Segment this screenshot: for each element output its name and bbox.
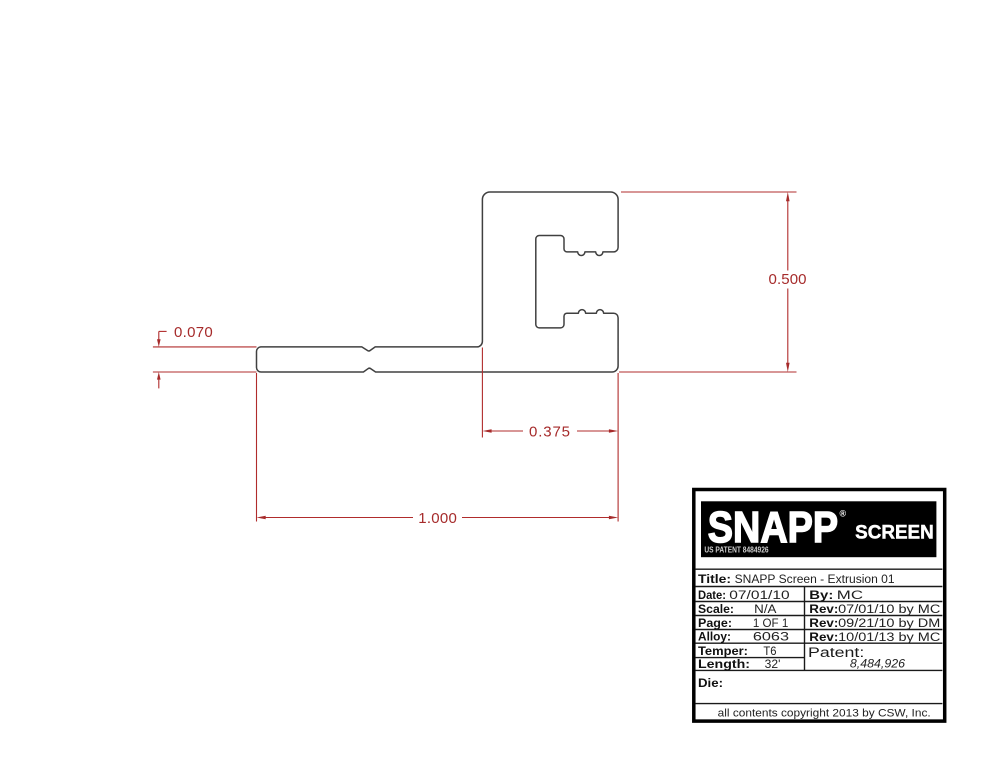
svg-text:MC: MC [837, 590, 863, 602]
svg-text:N/A: N/A [754, 604, 777, 616]
svg-text:SNAPP Screen - Extrusion 01: SNAPP Screen - Extrusion 01 [735, 574, 895, 586]
svg-text:Temper:: Temper: [698, 646, 748, 658]
svg-text:07/01/10 by MC: 07/01/10 by MC [838, 604, 940, 616]
svg-text:6063: 6063 [753, 632, 789, 644]
svg-text:SCREEN: SCREEN [855, 523, 934, 544]
svg-text:32': 32' [765, 659, 781, 671]
svg-text:Rev:: Rev: [809, 618, 838, 630]
svg-text:8,484,926: 8,484,926 [850, 658, 906, 670]
svg-text:®: ® [840, 509, 847, 519]
svg-text:Page:: Page: [698, 618, 732, 630]
svg-text:Scale:: Scale: [698, 604, 734, 616]
svg-text:Date:: Date: [698, 590, 726, 602]
svg-text:10/01/13 by MC: 10/01/13 by MC [838, 632, 940, 644]
svg-text:0.375: 0.375 [529, 423, 570, 440]
svg-text:09/21/10 by DM: 09/21/10 by DM [838, 618, 940, 630]
svg-text:1 OF 1: 1 OF 1 [753, 618, 788, 630]
svg-text:07/01/10: 07/01/10 [729, 590, 789, 602]
svg-text:0.070: 0.070 [174, 324, 213, 341]
svg-text:Length:: Length: [698, 659, 750, 671]
svg-text:1.000: 1.000 [418, 510, 457, 527]
svg-text:T6: T6 [763, 646, 776, 658]
svg-text:Alloy:: Alloy: [698, 632, 731, 644]
svg-text:US PATENT 8484926: US PATENT 8484926 [704, 545, 769, 554]
svg-text:Rev:: Rev: [809, 604, 838, 616]
svg-text:Die:: Die: [698, 678, 723, 690]
svg-text:all contents copyright 2013 by: all contents copyright 2013 by CSW, Inc. [718, 707, 931, 719]
svg-text:Rev:: Rev: [809, 632, 838, 644]
svg-text:Title:: Title: [698, 574, 731, 586]
svg-text:By:: By: [809, 590, 833, 602]
svg-text:0.500: 0.500 [769, 271, 807, 288]
